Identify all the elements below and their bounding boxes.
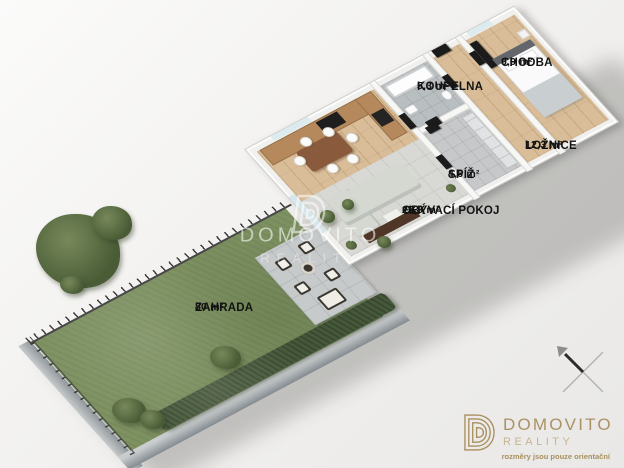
room-area: 9,9 m²: [501, 56, 533, 69]
room-area: 80 m²: [195, 301, 223, 314]
room-area: 4,6 m²: [448, 168, 480, 181]
logo-brand: DOMOVITO: [503, 415, 613, 435]
room-area: 12,3 m²: [525, 139, 563, 152]
floorplan-render: KOUPELNA 5,3 m² CHODBA 9,9 m² LOŽNICE 12…: [0, 0, 624, 468]
tree: [92, 206, 132, 240]
logo-tagline: rozměry jsou pouze orientační: [468, 452, 610, 461]
bush: [140, 410, 165, 429]
domovito-d-icon: [463, 413, 496, 452]
shrub: [342, 199, 354, 210]
compass-cross-icon: [551, 340, 615, 404]
watermark-sub: REALITY: [260, 251, 363, 266]
room-area: 5,3 m²: [417, 80, 449, 93]
bush: [210, 346, 241, 369]
terrace-chair: [323, 267, 342, 282]
shrub: [60, 276, 84, 294]
watermark-brand: DOMOVITO: [240, 225, 381, 248]
terrace-chair: [293, 281, 312, 296]
terrace-lounger: [316, 287, 347, 310]
room-area: 25,9 m²: [402, 204, 440, 217]
logo-sub: REALITY: [503, 436, 573, 448]
